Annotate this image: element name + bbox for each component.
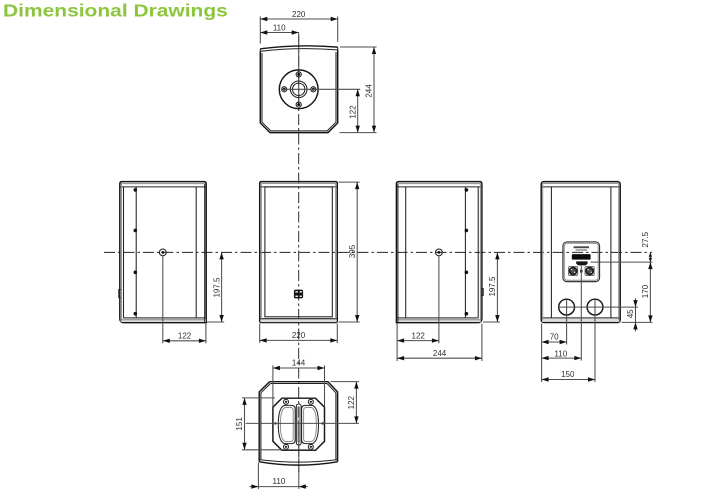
svg-text:122: 122 — [347, 395, 356, 409]
svg-text:144: 144 — [292, 359, 306, 368]
svg-text:150: 150 — [561, 370, 575, 379]
svg-text:220: 220 — [292, 331, 306, 340]
svg-text:244: 244 — [433, 349, 447, 358]
svg-text:45: 45 — [626, 309, 635, 318]
svg-text:122: 122 — [178, 332, 192, 341]
svg-text:Dimensional Drawings: Dimensional Drawings — [3, 1, 228, 21]
svg-text:170: 170 — [641, 284, 650, 298]
svg-text:122: 122 — [412, 331, 426, 340]
svg-text:110: 110 — [273, 477, 286, 486]
svg-text:395: 395 — [348, 244, 357, 258]
svg-text:197.5: 197.5 — [212, 277, 221, 298]
svg-text:197.5: 197.5 — [488, 276, 497, 297]
svg-text:110: 110 — [554, 350, 567, 359]
svg-text:151: 151 — [235, 417, 244, 431]
svg-text:110: 110 — [273, 24, 286, 33]
svg-text:70: 70 — [550, 333, 559, 342]
svg-text:220: 220 — [292, 10, 306, 19]
svg-text:27.5: 27.5 — [641, 231, 650, 247]
svg-text:122: 122 — [348, 105, 357, 119]
svg-text:244: 244 — [365, 84, 374, 98]
